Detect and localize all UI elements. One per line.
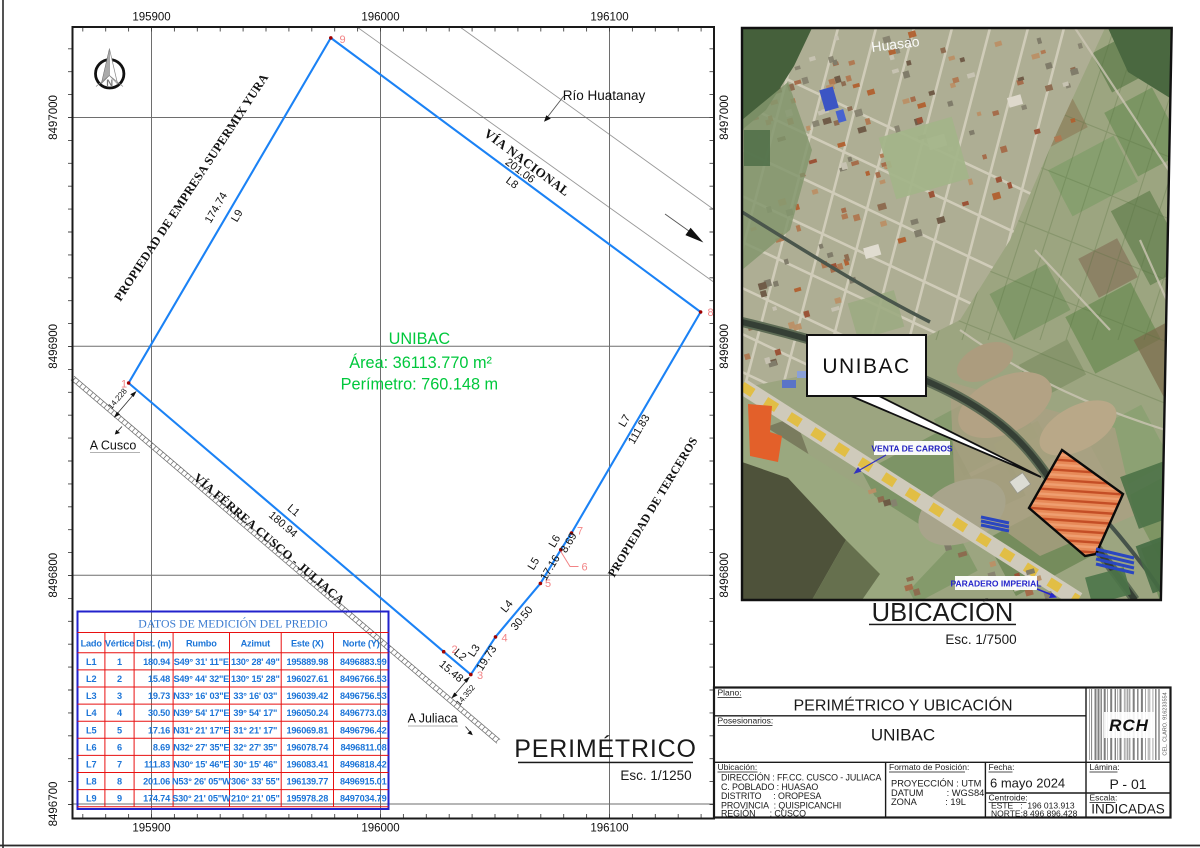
svg-text:31° 21' 17": 31° 21' 17": [233, 725, 277, 735]
svg-text:8496773.03: 8496773.03: [340, 708, 387, 718]
svg-text:196000: 196000: [361, 12, 399, 24]
svg-text:196039.42: 196039.42: [286, 691, 328, 701]
svg-text:S49° 44' 32"E: S49° 44' 32"E: [173, 674, 229, 684]
svg-text:L2: L2: [86, 674, 96, 684]
svg-text:7: 7: [577, 526, 583, 538]
svg-text:19.73: 19.73: [148, 691, 170, 701]
svg-text:Rumbo: Rumbo: [186, 639, 217, 649]
svg-text:L8: L8: [86, 777, 96, 787]
svg-text:REGIÓN : CUSCO: REGIÓN : CUSCO: [721, 809, 806, 819]
svg-text:130° 28' 49": 130° 28' 49": [231, 657, 280, 667]
svg-text:8496900: 8496900: [719, 324, 731, 369]
svg-text:S30° 21' 05"W: S30° 21' 05"W: [172, 794, 231, 804]
svg-text:N31° 21' 17"E: N31° 21' 17"E: [173, 725, 229, 735]
svg-text:196083.41: 196083.41: [286, 760, 328, 770]
svg-text:195900: 195900: [132, 823, 170, 835]
svg-text:ZONA : 19L: ZONA : 19L: [891, 797, 966, 807]
svg-text:5: 5: [117, 725, 122, 735]
svg-text:UNIBAC: UNIBAC: [822, 355, 910, 378]
svg-text:L1: L1: [86, 657, 96, 667]
svg-text:A Juliaca: A Juliaca: [408, 712, 458, 726]
svg-text:306° 33' 55": 306° 33' 55": [231, 777, 280, 787]
svg-text:6 mayo 2024: 6 mayo 2024: [990, 776, 1065, 791]
svg-text:15.48: 15.48: [148, 674, 170, 684]
svg-text:30° 15' 46": 30° 15' 46": [233, 760, 277, 770]
svg-text:196000: 196000: [361, 823, 399, 835]
svg-text:Norte (Y): Norte (Y): [343, 639, 380, 649]
svg-text:17.16: 17.16: [148, 725, 170, 735]
svg-text:8497034.79: 8497034.79: [340, 794, 387, 804]
svg-text:8496766.53: 8496766.53: [340, 674, 387, 684]
svg-text:S49° 31' 11"E: S49° 31' 11"E: [174, 657, 229, 667]
svg-text:196069.81: 196069.81: [286, 725, 328, 735]
svg-text:210° 21' 05": 210° 21' 05": [231, 794, 280, 804]
svg-text:Río Huatanay: Río Huatanay: [563, 88, 646, 103]
svg-text:111.83: 111.83: [144, 760, 170, 770]
svg-text:N33° 16' 03"E: N33° 16' 03"E: [173, 691, 229, 701]
svg-text:CEL. CLARO. 916233554: CEL. CLARO. 916233554: [1163, 692, 1169, 755]
svg-text:8496915.01: 8496915.01: [340, 777, 387, 787]
svg-text:174.74: 174.74: [143, 794, 171, 804]
svg-text:Lado: Lado: [81, 639, 103, 649]
svg-text:Esc. 1/7500: Esc. 1/7500: [945, 632, 1016, 647]
svg-text:39° 54' 17": 39° 54' 17": [233, 708, 277, 718]
svg-text:L4: L4: [86, 708, 97, 718]
svg-text:6: 6: [117, 742, 122, 752]
svg-text:7: 7: [117, 760, 122, 770]
svg-text:196139.77: 196139.77: [286, 777, 328, 787]
svg-text:A Cusco: A Cusco: [90, 439, 137, 453]
svg-text:Formato de Posición:: Formato de Posición:: [889, 762, 969, 772]
svg-text:9: 9: [117, 794, 122, 804]
svg-text:Ubicación:: Ubicación:: [718, 762, 758, 772]
svg-text:30.50: 30.50: [148, 708, 170, 718]
svg-text:180.94: 180.94: [143, 657, 171, 667]
svg-text:195900: 195900: [132, 12, 170, 24]
svg-text:DATOS DE MEDICIÓN DEL PREDIO: DATOS DE MEDICIÓN DEL PREDIO: [138, 617, 328, 631]
svg-text:N53° 26' 05"W: N53° 26' 05"W: [172, 777, 231, 787]
svg-text:8496818.42: 8496818.42: [340, 760, 387, 770]
svg-text:L9: L9: [86, 794, 96, 804]
svg-text:Este (X): Este (X): [291, 639, 324, 649]
svg-text:8496796.42: 8496796.42: [340, 725, 387, 735]
svg-text:PERIMÉTRICO Y UBICACIÓN: PERIMÉTRICO Y UBICACIÓN: [794, 696, 1013, 715]
svg-text:130° 15' 28": 130° 15' 28": [231, 674, 280, 684]
svg-text:P - 01: P - 01: [1109, 776, 1146, 792]
svg-text:33° 16' 03": 33° 16' 03": [233, 691, 277, 701]
svg-text:PARADERO IMPERIAL: PARADERO IMPERIAL: [951, 579, 1042, 589]
svg-text:1: 1: [117, 657, 122, 667]
svg-text:8.69: 8.69: [153, 742, 170, 752]
svg-text:UNIBAC: UNIBAC: [871, 726, 935, 745]
svg-text:UNIBAC: UNIBAC: [389, 330, 451, 348]
svg-text:8496800: 8496800: [719, 553, 731, 598]
svg-text:8: 8: [708, 307, 714, 319]
svg-text:Fecha:: Fecha:: [989, 762, 1015, 772]
svg-text:Área: 36113.770 m²: Área: 36113.770 m²: [349, 353, 492, 372]
svg-text:VENTA DE CARROS: VENTA DE CARROS: [871, 444, 953, 454]
svg-text:195889.98: 195889.98: [286, 657, 328, 667]
svg-text:8496800: 8496800: [48, 553, 60, 598]
svg-text:196100: 196100: [590, 823, 628, 835]
svg-text:UBICACIÓN: UBICACIÓN: [872, 598, 1014, 627]
svg-text:8496756.53: 8496756.53: [340, 691, 387, 701]
svg-text:196027.61: 196027.61: [286, 674, 328, 684]
svg-text:PERIMÉTRICO: PERIMÉTRICO: [514, 734, 696, 763]
svg-text:Lámina:: Lámina:: [1090, 762, 1120, 772]
svg-text:8496883.99: 8496883.99: [340, 657, 387, 667]
svg-text:Plano:: Plano:: [718, 688, 742, 698]
svg-text:8496900: 8496900: [48, 324, 60, 369]
svg-text:195978.28: 195978.28: [286, 794, 328, 804]
svg-text:8: 8: [117, 777, 122, 787]
svg-text:L6: L6: [86, 742, 96, 752]
svg-text:NORTE:8 496 896.428: NORTE:8 496 896.428: [991, 808, 1078, 818]
svg-text:6: 6: [582, 562, 588, 574]
svg-text:201.06: 201.06: [143, 777, 170, 787]
svg-text:8497000: 8497000: [719, 95, 731, 140]
svg-text:N30° 15' 46"E: N30° 15' 46"E: [173, 760, 229, 770]
svg-text:196050.24: 196050.24: [286, 708, 329, 718]
svg-text:RCH: RCH: [1109, 716, 1149, 735]
svg-text:196078.74: 196078.74: [286, 742, 329, 752]
svg-text:8496811.08: 8496811.08: [340, 742, 386, 752]
svg-text:8497000: 8497000: [48, 95, 60, 140]
svg-text:2: 2: [117, 674, 122, 684]
svg-text:L3: L3: [86, 691, 96, 701]
svg-text:32° 27' 35": 32° 27' 35": [233, 742, 277, 752]
svg-text:Posesionarios:: Posesionarios:: [718, 716, 774, 726]
svg-text:L7: L7: [86, 760, 96, 770]
svg-text:N: N: [106, 78, 113, 89]
svg-text:N32° 27' 35"E: N32° 27' 35"E: [173, 742, 229, 752]
svg-text:N39° 54' 17"E: N39° 54' 17"E: [173, 708, 229, 718]
svg-text:3: 3: [117, 691, 122, 701]
svg-text:Azimut: Azimut: [241, 639, 271, 649]
svg-text:INDICADAS: INDICADAS: [1091, 802, 1165, 817]
svg-text:Vértice: Vértice: [105, 639, 134, 649]
svg-text:196100: 196100: [590, 12, 628, 24]
svg-text:Dist. (m): Dist. (m): [136, 639, 171, 649]
svg-text:L5: L5: [86, 725, 96, 735]
svg-text:8496700: 8496700: [48, 782, 60, 827]
svg-text:Perímetro: 760.148 m: Perímetro: 760.148 m: [341, 376, 498, 394]
svg-text:9: 9: [340, 34, 346, 46]
svg-text:Esc. 1/1250: Esc. 1/1250: [620, 768, 691, 783]
svg-text:4: 4: [502, 633, 508, 645]
